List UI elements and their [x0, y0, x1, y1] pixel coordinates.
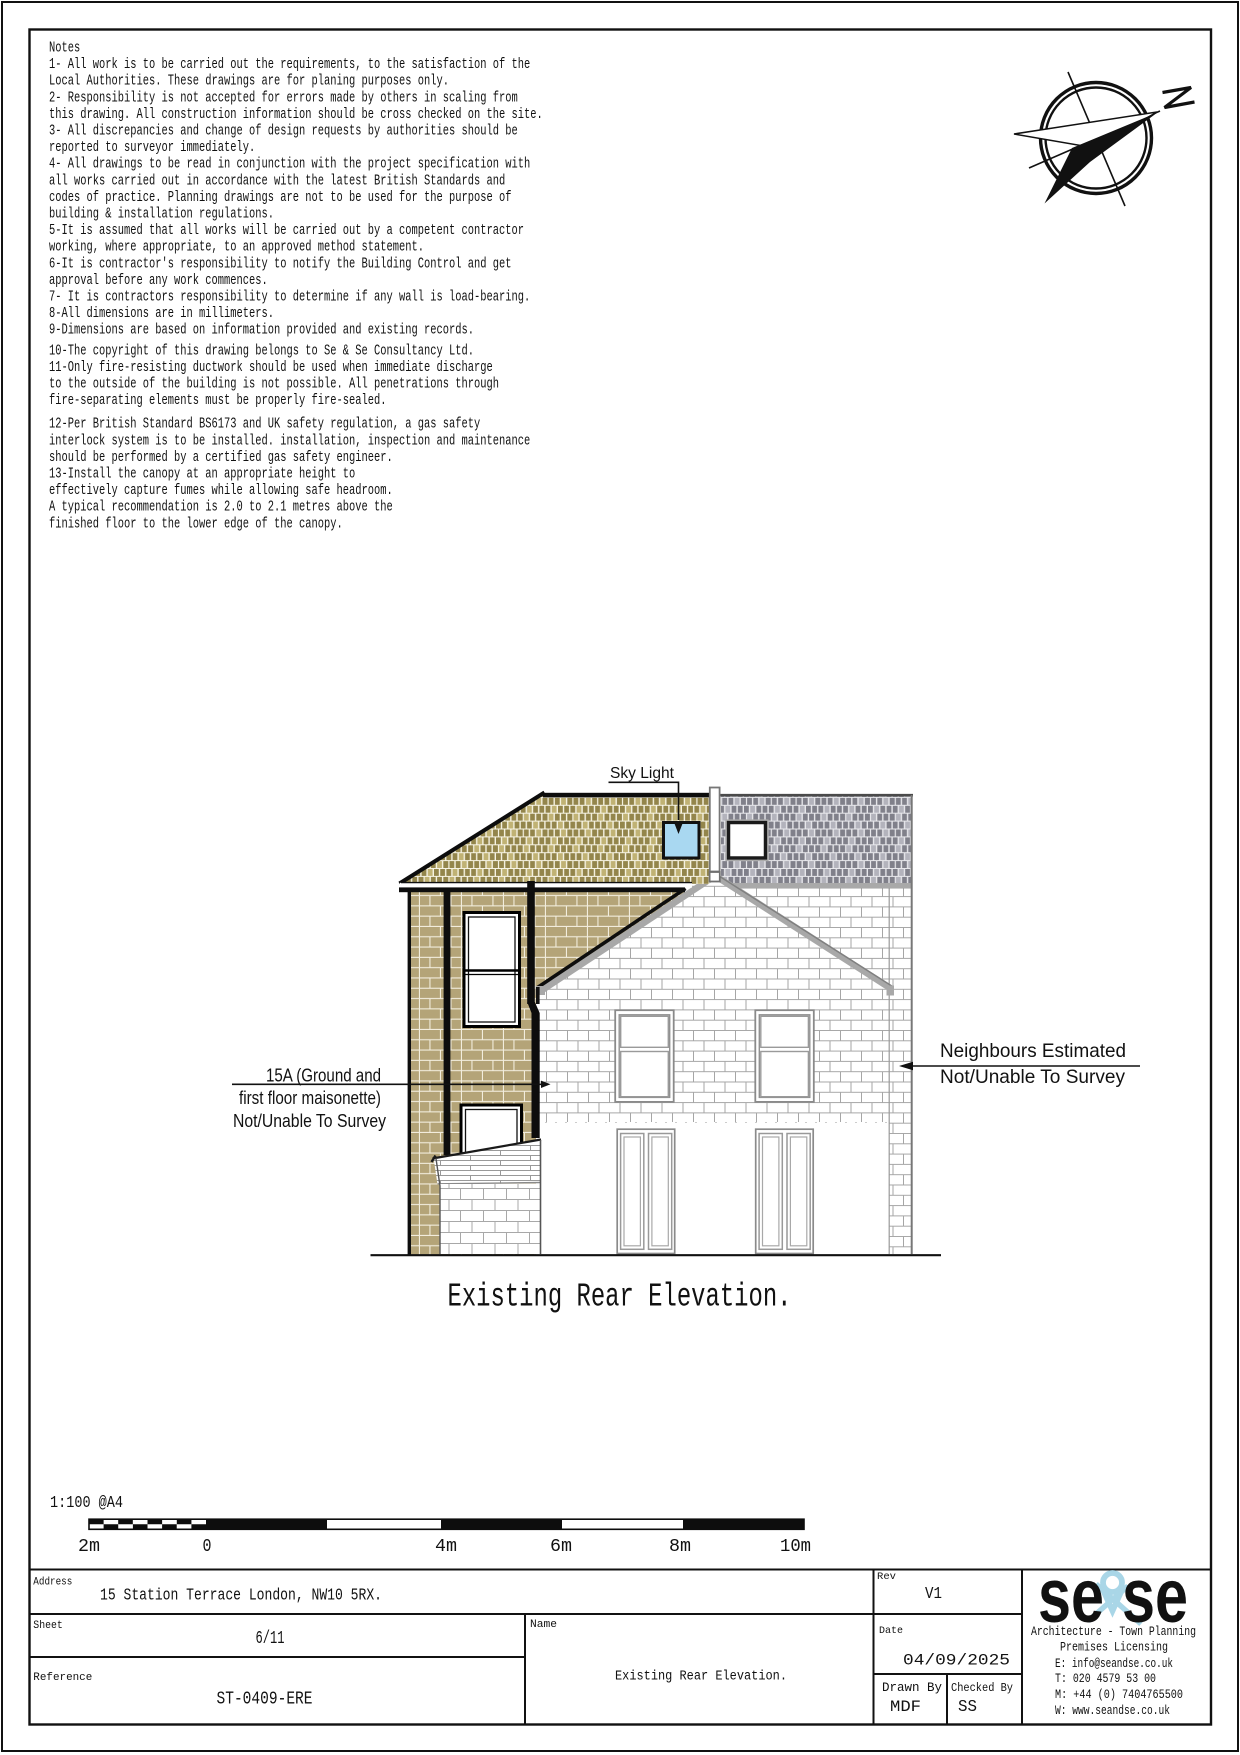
- svg-text:approval before any work comme: approval before any work commences.: [49, 272, 268, 289]
- svg-text:5-It is assumed that all works: 5-It is assumed that all works will be c…: [49, 222, 524, 239]
- svg-text:12-Per British Standard BS6173: 12-Per British Standard BS6173 and UK sa…: [49, 416, 480, 433]
- svg-text:8-All dimensions are in millim: 8-All dimensions are in millimeters.: [49, 305, 274, 322]
- svg-text:Notes: Notes: [49, 40, 80, 57]
- svg-text:10m: 10m: [780, 1536, 811, 1557]
- svg-text:Neighbours Estimated: Neighbours Estimated: [940, 1040, 1126, 1062]
- svg-text:Name: Name: [530, 1619, 557, 1631]
- svg-text:13-Install the canopy at an ap: 13-Install the canopy at an appropriate …: [49, 466, 355, 483]
- svg-text:10-The copyright of this drawi: 10-The copyright of this drawing belongs…: [49, 342, 474, 359]
- svg-text:2- Responsibility is not accep: 2- Responsibility is not accepted for er…: [49, 89, 518, 106]
- svg-text:6-It is contractor's responsib: 6-It is contractor's responsibility to n…: [49, 255, 512, 272]
- svg-text:3- All discrepancies and chang: 3- All discrepancies and change of desig…: [49, 123, 518, 140]
- svg-text:to the outside of the building: to the outside of the building is not po…: [49, 376, 499, 393]
- svg-text:interlock system is to be inst: interlock system is to be installed. ins…: [49, 432, 530, 449]
- svg-text:SS: SS: [958, 1697, 977, 1716]
- svg-text:0: 0: [203, 1536, 212, 1557]
- svg-text:Architecture - Town Planning: Architecture - Town Planning: [1031, 1624, 1196, 1639]
- svg-text:W: www.seandse.co.uk: W: www.seandse.co.uk: [1055, 1703, 1170, 1718]
- svg-text:15 Station Terrace London, NW1: 15 Station Terrace London, NW10 5RX.: [100, 1587, 382, 1606]
- svg-text:4- All drawings to be read in: 4- All drawings to be read in conjunctio…: [49, 156, 530, 173]
- svg-text:Existing Rear Elevation.: Existing Rear Elevation.: [448, 1279, 792, 1316]
- svg-text:V1: V1: [925, 1584, 942, 1603]
- svg-text:reported to surveyor immediate: reported to surveyor immediately.: [49, 139, 255, 156]
- svg-text:1- All work is to be carried o: 1- All work is to be carried out the req…: [49, 56, 530, 73]
- svg-text:Existing Rear Elevation.: Existing Rear Elevation.: [615, 1670, 787, 1685]
- svg-text:ST-0409-ERE: ST-0409-ERE: [217, 1690, 313, 1710]
- svg-text:4m: 4m: [435, 1536, 457, 1557]
- svg-text:Drawn By: Drawn By: [882, 1680, 942, 1695]
- svg-text:all works carried out in accor: all works carried out in accordance with…: [49, 172, 505, 189]
- svg-text:working, where appropriate, to: working, where appropriate, to an approv…: [49, 239, 424, 256]
- svg-text:MDF: MDF: [890, 1698, 921, 1716]
- svg-text:6m: 6m: [550, 1536, 572, 1557]
- svg-text:T: 020 4579 53 00: T: 020 4579 53 00: [1055, 1671, 1156, 1686]
- svg-text:M: +44 (0) 7404765500: M: +44 (0) 7404765500: [1055, 1687, 1183, 1702]
- svg-text:11-Only fire-resisting ductwor: 11-Only fire-resisting ductwork should b…: [49, 359, 493, 376]
- svg-text:A typical recommendation is 2.: A typical recommendation is 2.0 to 2.1 m…: [49, 499, 393, 516]
- svg-text:Not/Unable To Survey: Not/Unable To Survey: [233, 1111, 386, 1131]
- svg-text:should be performed by a certi: should be performed by a certified gas s…: [49, 449, 393, 466]
- svg-text:first floor maisonette): first floor maisonette): [239, 1088, 381, 1108]
- svg-text:effectively capture fumes whil: effectively capture fumes while allowing…: [49, 482, 393, 499]
- svg-text:2m: 2m: [78, 1536, 100, 1557]
- svg-text:Reference: Reference: [33, 1672, 92, 1684]
- svg-text:Rev: Rev: [877, 1571, 896, 1583]
- svg-text:8m: 8m: [669, 1536, 691, 1557]
- svg-text:1:100 @A4: 1:100 @A4: [50, 1494, 123, 1513]
- svg-text:this drawing. All construction: this drawing. All construction informati…: [49, 106, 543, 123]
- svg-text:7- It is contractors responsib: 7- It is contractors responsibility to d…: [49, 289, 530, 306]
- svg-text:building & installation regula: building & installation regulations.: [49, 206, 274, 223]
- svg-text:Sheet: Sheet: [33, 1620, 63, 1632]
- svg-text:Address: Address: [33, 1577, 72, 1589]
- svg-text:Not/Unable To Survey: Not/Unable To Survey: [940, 1066, 1125, 1088]
- svg-text:Premises Licensing: Premises Licensing: [1060, 1640, 1168, 1655]
- svg-text:6/11: 6/11: [256, 1629, 285, 1649]
- svg-text:15A (Ground and: 15A (Ground and: [266, 1066, 381, 1086]
- svg-text:finished floor to the lower ed: finished floor to the lower edge of the …: [49, 515, 343, 532]
- svg-text:Checked By: Checked By: [951, 1682, 1013, 1695]
- svg-text:fire-separating elements must: fire-separating elements must be properl…: [49, 392, 387, 409]
- svg-text:04/09/2025: 04/09/2025: [903, 1652, 1010, 1670]
- svg-text:Date: Date: [879, 1625, 903, 1637]
- svg-text:codes of practice. Planning dr: codes of practice. Planning drawings are…: [49, 189, 512, 206]
- svg-text:Local Authorities. These drawi: Local Authorities. These drawings are fo…: [49, 73, 449, 90]
- svg-text:Sky Light: Sky Light: [610, 765, 675, 782]
- svg-text:E: info@seandse.co.uk: E: info@seandse.co.uk: [1055, 1656, 1173, 1671]
- svg-text:9-Dimensions are based on info: 9-Dimensions are based on information pr…: [49, 322, 474, 339]
